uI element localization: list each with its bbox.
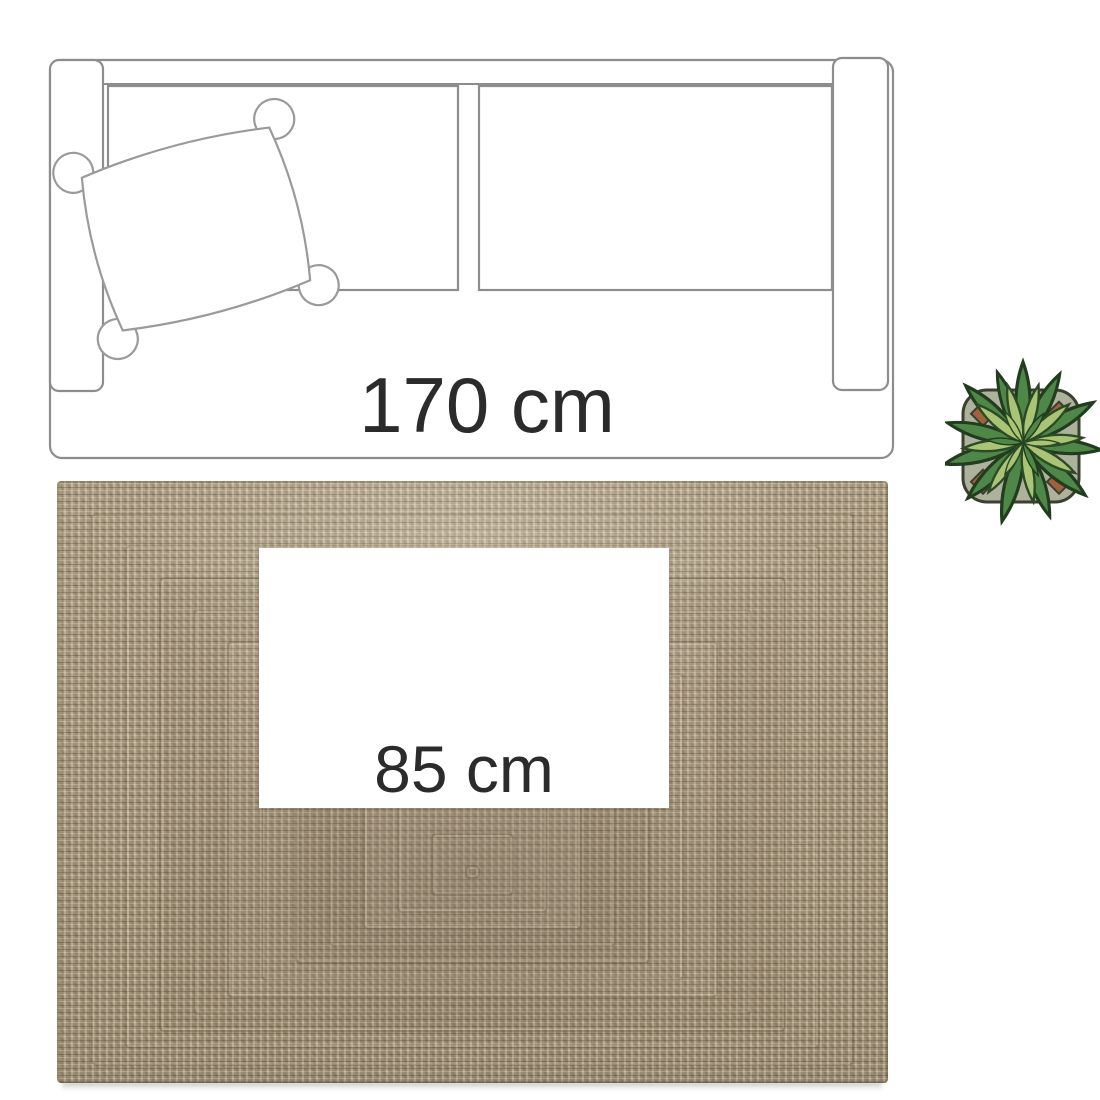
- rug-width-label-box: 85 cm: [259, 548, 669, 808]
- product-dimension-diagram: 170 cm: [0, 0, 1100, 1100]
- sofa-cushion-right: [479, 86, 832, 290]
- rug-width-label: 85 cm: [374, 736, 554, 808]
- rug-drop-shadow: [62, 1081, 882, 1090]
- sofa-armrest-right: [833, 58, 888, 390]
- rug-braid-band: [465, 865, 480, 879]
- sofa-length-label: 170 cm: [292, 366, 682, 444]
- potted-plant-icon: [945, 355, 1100, 530]
- plant-svg: [945, 355, 1100, 530]
- sofa-top-view-icon: 170 cm: [48, 55, 898, 465]
